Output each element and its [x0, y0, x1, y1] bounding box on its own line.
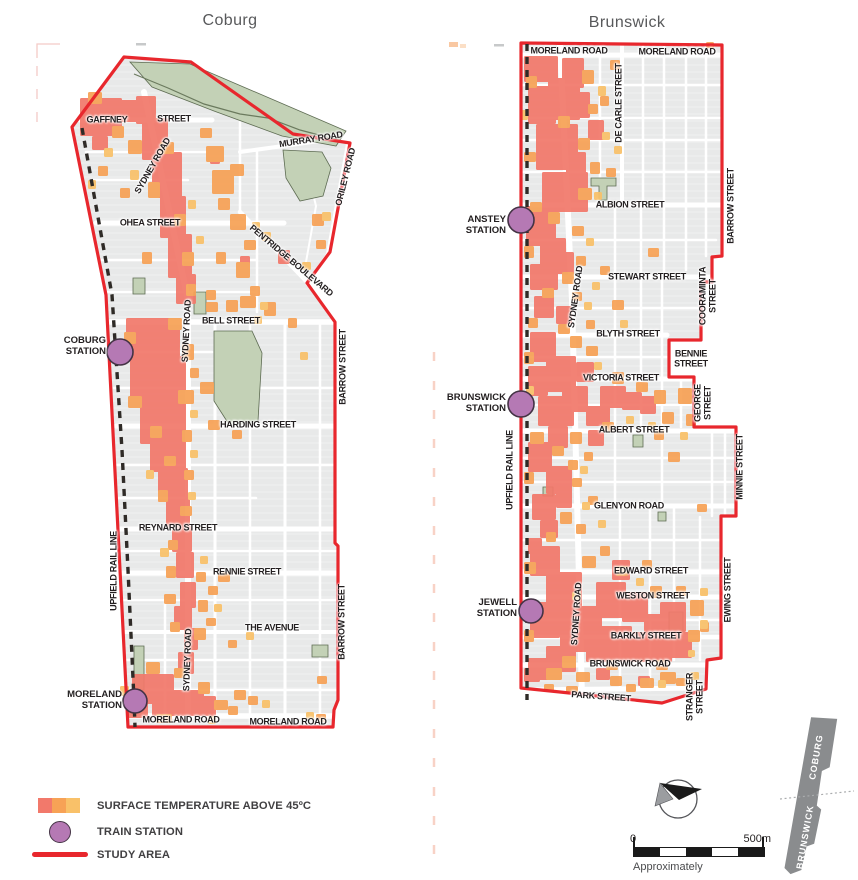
legend-label-study-area: STUDY AREA: [97, 849, 170, 861]
brunswick-map-panel: [508, 42, 736, 703]
coburg-map-panel: [72, 57, 350, 727]
scale-bar: 0 500m Approximately: [633, 833, 765, 879]
map-title-brunswick: Brunswick: [589, 14, 666, 32]
heat-swatch-yellow-icon: [66, 798, 80, 813]
locator-inset-map: [768, 710, 858, 880]
scale-caption: Approximately: [633, 861, 703, 873]
station-marker: [508, 391, 534, 417]
legend-label-train-station: TRAIN STATION: [97, 826, 183, 838]
north-arrow-compass-icon: [649, 770, 707, 828]
figure-canvas: Coburg Brunswick GAFFNEYSTREETMURRAY ROA…: [0, 0, 858, 880]
station-marker: [508, 207, 534, 233]
map-canvas: [0, 0, 858, 880]
legend-label-surface-temperature: SURFACE TEMPERATURE ABOVE 45ºC: [97, 800, 311, 812]
scale-bar-segments: [633, 847, 765, 857]
study-area-icon: [32, 852, 88, 857]
heat-swatch-red-icon: [38, 798, 52, 813]
train-station-icon: [49, 821, 71, 843]
station-marker: [123, 689, 147, 713]
scale-end-label: 500m: [743, 833, 771, 845]
map-title-coburg: Coburg: [203, 12, 258, 30]
station-marker: [519, 599, 543, 623]
station-marker: [107, 339, 133, 365]
heat-swatch-orange-icon: [52, 798, 66, 813]
legend: SURFACE TEMPERATURE ABOVE 45ºC TRAIN STA…: [30, 790, 375, 872]
